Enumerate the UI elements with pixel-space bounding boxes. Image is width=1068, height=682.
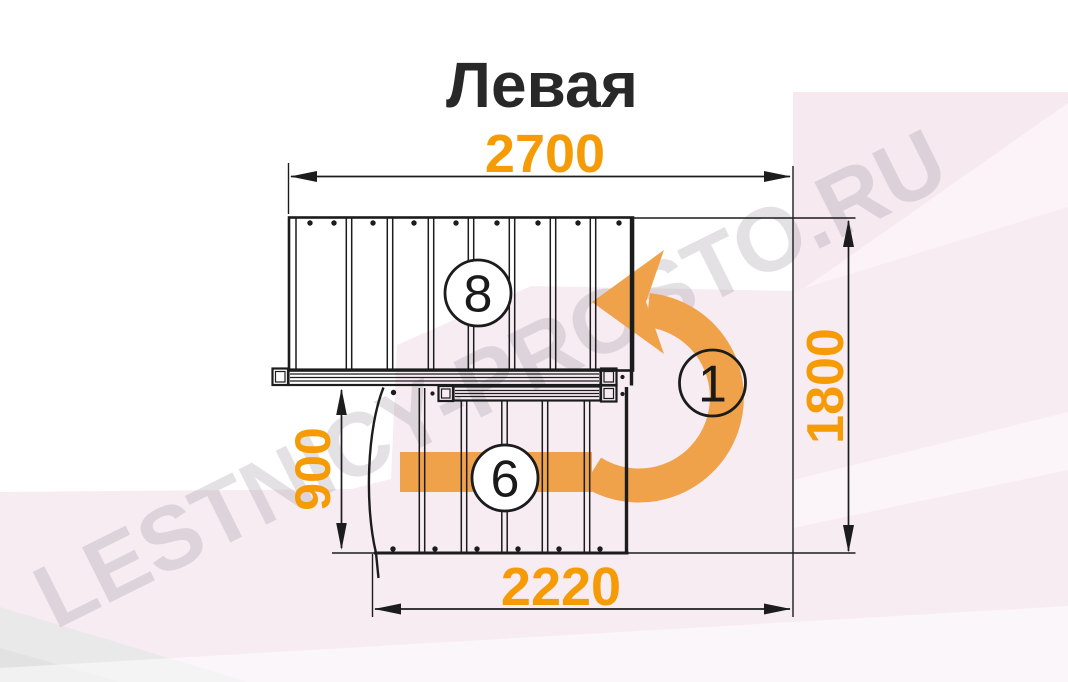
turn-step-count: 1	[698, 356, 727, 414]
upper-flight-step-count: 8	[464, 266, 493, 324]
dim-lower-flight-depth-value: 900	[285, 427, 341, 510]
dim-opening-width-value: 2220	[501, 557, 621, 617]
stair-plan-drawing: LESTNICY-PROSTO.RU	[0, 0, 1068, 682]
dim-overall-width: 2700	[290, 124, 791, 184]
upper-flight-screw-dots	[307, 220, 621, 225]
dim-overall-width-value: 2700	[485, 124, 605, 184]
drawing-canvas: LESTNICY-PROSTO.RU	[0, 0, 1068, 682]
dim-overall-depth-value: 1800	[797, 328, 855, 444]
dim-arrowhead	[290, 171, 317, 182]
page-title: Левая	[446, 49, 638, 121]
lower-flight-step-count: 6	[491, 451, 520, 509]
